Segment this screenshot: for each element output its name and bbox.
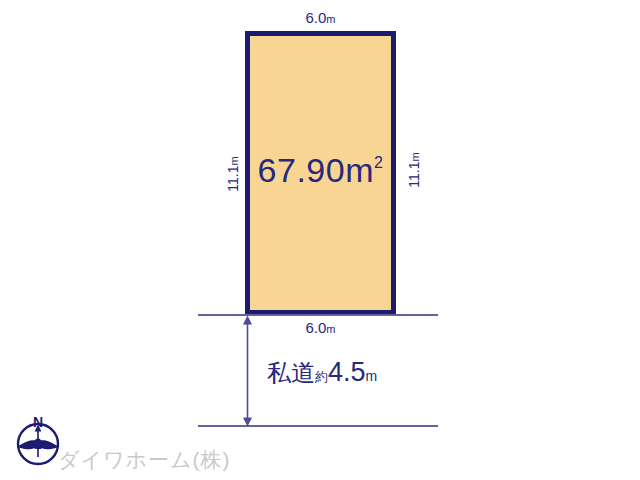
- dimension-top-width: 6.0m: [245, 9, 396, 26]
- road-edge-line-top: [198, 314, 438, 316]
- dimension-right-unit: m: [409, 152, 421, 161]
- road-name: 私道: [267, 359, 315, 386]
- dimension-left-value: 11.1: [225, 165, 241, 191]
- dimension-bottom-unit: m: [326, 323, 335, 335]
- lot-area-label: 67.90m2: [245, 151, 396, 190]
- north-compass-icon: N: [12, 410, 64, 470]
- area-unit: m: [345, 151, 374, 189]
- dimension-top-unit: m: [326, 13, 335, 25]
- dimension-right-value: 11.1: [406, 161, 422, 187]
- dimension-bottom-value: 6.0: [305, 319, 326, 336]
- road-width-unit: m: [365, 368, 377, 384]
- dimension-top-value: 6.0: [305, 9, 326, 26]
- road-label: 私道約4.5m: [242, 357, 402, 389]
- dimension-right-depth: 11.1m: [406, 140, 422, 200]
- company-name: ダイワホーム(株): [58, 446, 230, 474]
- area-superscript: 2: [374, 154, 383, 171]
- site-plan-diagram: 67.90m2 6.0m 6.0m 11.1m 11.1m 私道約4.5m N …: [0, 0, 640, 480]
- road-width-value: 4.5: [328, 357, 366, 387]
- dimension-bottom-width: 6.0m: [245, 319, 396, 336]
- road-edge-line-bottom: [198, 425, 438, 427]
- road-approx-prefix: 約: [315, 369, 328, 384]
- dimension-left-depth: 11.1m: [225, 144, 241, 204]
- area-value: 67.90: [258, 151, 346, 189]
- dimension-left-unit: m: [228, 156, 240, 165]
- bird-silhouette: [17, 439, 59, 450]
